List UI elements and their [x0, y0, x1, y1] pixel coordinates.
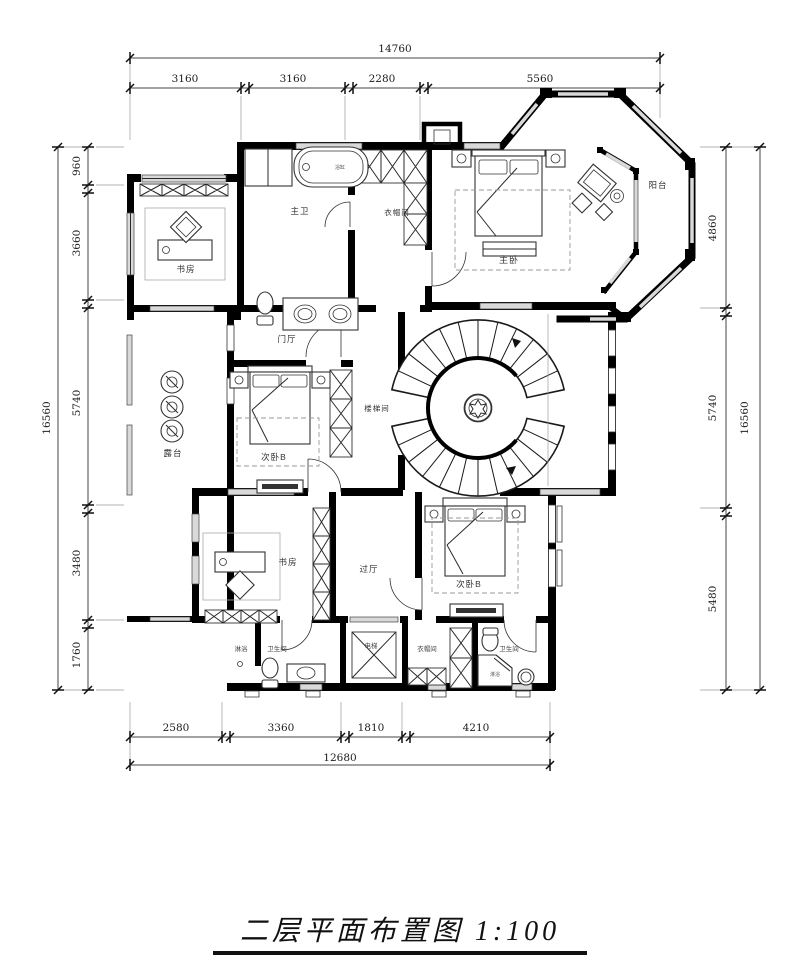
room-label-cloakroom-top: 衣帽间	[384, 207, 410, 217]
nightstand	[546, 150, 565, 167]
dimension-chain-left: 16560 960 3660 5740 3480 1760	[41, 143, 124, 694]
dim-top-seg-2: 3160	[280, 73, 307, 85]
bathtub-label: 浴缸	[335, 164, 345, 171]
room-label-study-top: 书房	[176, 264, 195, 274]
nightstand	[452, 150, 471, 167]
bed-symbol	[250, 372, 310, 444]
bed-symbol	[475, 156, 542, 236]
terrace-plants	[161, 371, 183, 442]
dim-left-seg-1: 960	[71, 156, 83, 176]
room-label-bedroom-b-bottom: 次卧B	[456, 579, 482, 589]
dim-left-seg-3: 5740	[71, 390, 83, 417]
room-label-balcony: 阳台	[648, 180, 667, 190]
room-label-shower-right: 淋浴	[490, 671, 500, 678]
room-label-master-bedroom: 主卧	[499, 254, 519, 265]
page-title: 二层平面布置图 1:100	[240, 916, 560, 947]
stairs-symbol	[392, 314, 564, 496]
bed-symbol	[445, 506, 505, 576]
room-label-foyer: 门厅	[277, 334, 296, 344]
title-block: 二层平面布置图 1:100	[213, 916, 587, 955]
dim-right-seg-2: 5740	[707, 395, 719, 422]
bath-right-fixtures	[478, 628, 534, 686]
floor-plan-page: 14760 3160 3160 2280 5560 16560 960 3660…	[0, 0, 800, 975]
toilet-symbol	[257, 292, 273, 314]
room-label-bath-left: 卫生间	[267, 644, 287, 653]
balcony-sofa-group	[572, 164, 623, 220]
dim-bottom-seg-3: 1810	[358, 722, 385, 734]
dim-right-seg-1: 4860	[707, 215, 719, 242]
dim-left-seg-5: 1760	[71, 642, 83, 669]
plant-symbol	[611, 190, 624, 203]
dim-top-seg-3: 2280	[369, 73, 396, 85]
sink-symbol	[518, 669, 534, 685]
floor-plan-drawing: 14760 3160 3160 2280 5560 16560 960 3660…	[0, 0, 800, 975]
room-label-bedroom-b-mid: 次卧B	[261, 452, 287, 462]
room-label-master-bath: 主卫	[290, 206, 309, 216]
dim-bottom-seg-1: 2580	[163, 722, 190, 734]
dim-bottom-seg-4: 4210	[463, 722, 490, 734]
dim-bottom-seg-2: 3360	[268, 722, 295, 734]
bedroom-mid-group	[230, 366, 330, 493]
balcony-partition-wall	[600, 150, 636, 291]
chair-symbol	[170, 211, 201, 242]
room-label-stair-hall: 楼梯间	[364, 403, 390, 413]
bedroom-bottom-group	[425, 498, 525, 617]
dim-left-seg-4: 3480	[71, 550, 83, 577]
room-label-hallway: 过厅	[359, 564, 378, 574]
dim-right-seg-3: 5480	[707, 586, 719, 613]
study-bottom-furniture	[203, 533, 280, 600]
toilet-symbol	[262, 658, 278, 678]
dim-left-seg-2: 3660	[71, 230, 83, 257]
room-label-cloakroom-bottom: 衣帽间	[417, 644, 437, 653]
elevator-symbol	[352, 632, 396, 678]
dim-top-seg-4: 5560	[527, 73, 554, 85]
dim-left-total: 16560	[41, 401, 53, 434]
master-bed-group	[452, 150, 570, 270]
desk-symbol	[158, 240, 212, 260]
desk-symbol	[215, 552, 265, 572]
dimension-chain-right: 16560 4860 5740 5480	[700, 143, 766, 694]
dim-top-total: 14760	[378, 43, 411, 55]
dim-bottom-total: 12680	[323, 752, 356, 764]
dim-top-seg-1: 3160	[172, 73, 199, 85]
room-label-study-bottom: 书房	[278, 557, 297, 567]
shower-head	[238, 662, 243, 667]
room-label-bath-right: 卫生间	[499, 644, 519, 653]
dimension-chain-bottom: 2580 3360 1810 4210 12680	[126, 702, 554, 771]
room-label-shower-left: 淋浴	[235, 644, 249, 653]
dim-right-total: 16560	[739, 401, 751, 434]
room-label-elevator: 电梯	[365, 641, 379, 650]
room-label-terrace: 露台	[163, 448, 182, 458]
title-underline	[213, 951, 587, 955]
shower-stall	[478, 655, 512, 686]
